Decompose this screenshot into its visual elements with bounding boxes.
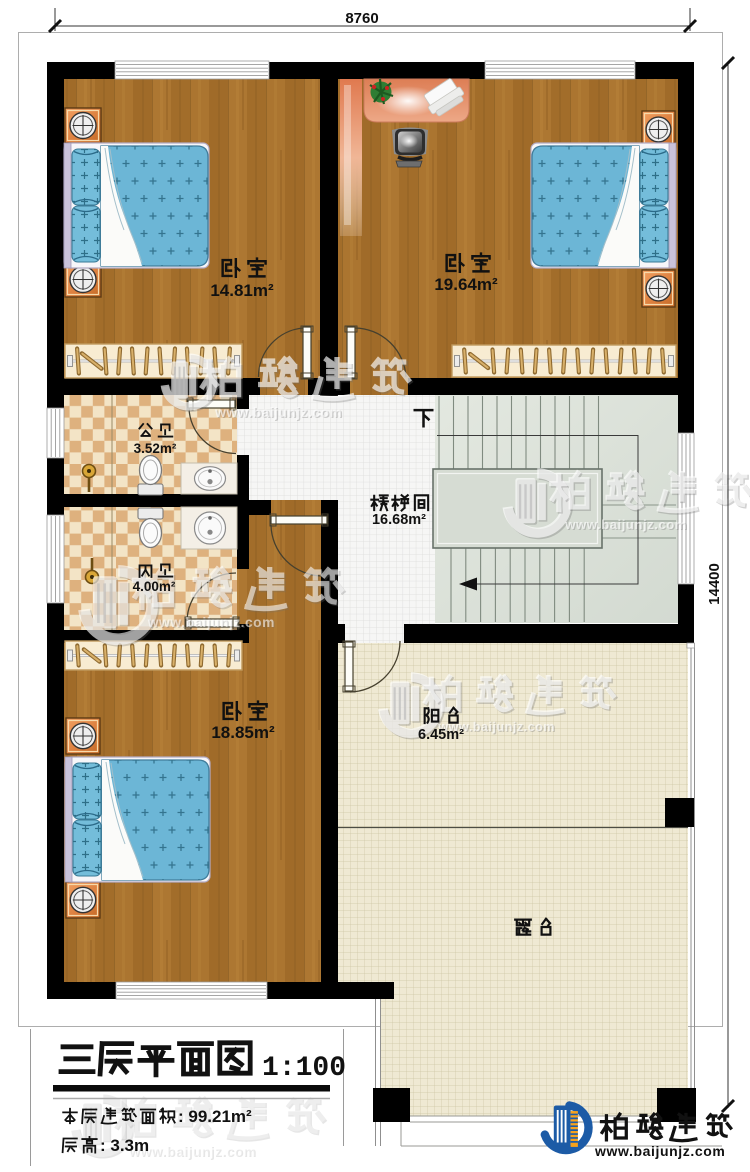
svg-text:www.baijunjz.com: www.baijunjz.com: [564, 517, 687, 532]
svg-text:1:100: 1:100: [262, 1053, 346, 1084]
svg-text:www.baijunjz.com: www.baijunjz.com: [594, 1143, 725, 1159]
svg-text:4.00m²: 4.00m²: [133, 579, 176, 594]
svg-text:19.64m²: 19.64m²: [434, 275, 498, 294]
svg-text:8760: 8760: [345, 10, 378, 27]
svg-text:16.68m²: 16.68m²: [372, 512, 426, 528]
svg-text:: 3.3m: : 3.3m: [100, 1136, 149, 1155]
svg-text:6.45m²: 6.45m²: [418, 727, 464, 743]
svg-text:18.85m²: 18.85m²: [211, 723, 275, 742]
svg-text:www.baijunjz.com: www.baijunjz.com: [147, 615, 275, 630]
svg-text:www.baijunjz.com: www.baijunjz.com: [214, 405, 342, 420]
svg-text:14.81m²: 14.81m²: [210, 281, 274, 300]
svg-text:: 99.21m²: : 99.21m²: [178, 1107, 252, 1126]
svg-text:3.52m²: 3.52m²: [134, 441, 177, 456]
svg-text:14400: 14400: [706, 563, 723, 605]
